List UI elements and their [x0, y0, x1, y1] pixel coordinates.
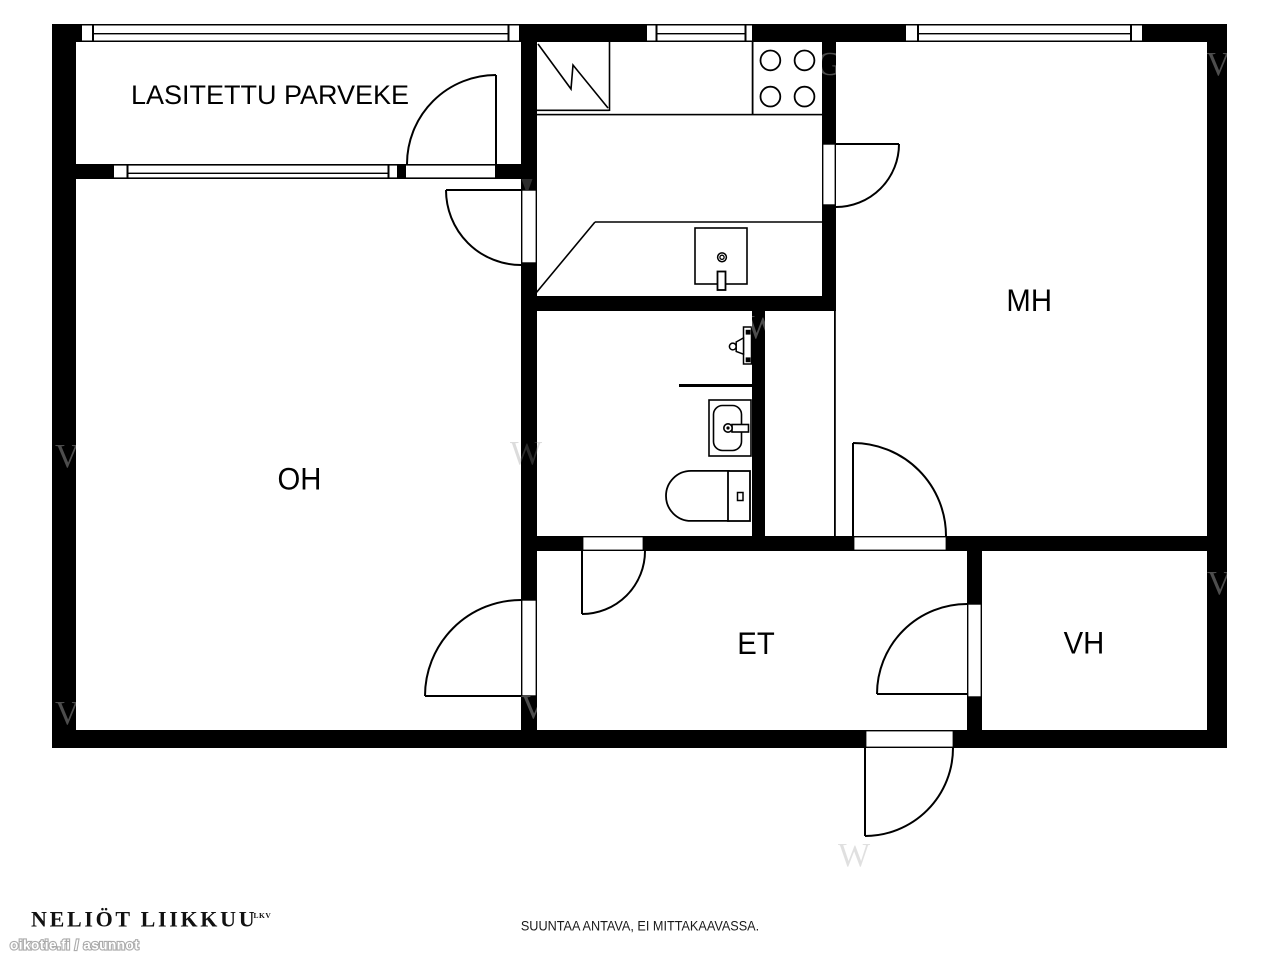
svg-text:V: V	[1206, 46, 1231, 83]
svg-text:MH: MH	[1006, 283, 1052, 318]
svg-text:LKV: LKV	[254, 911, 272, 920]
svg-text:NELIÖT LIIKKUU: NELIÖT LIIKKUU	[31, 907, 257, 932]
svg-text:oikotie.fi / asunnot: oikotie.fi / asunnot	[10, 938, 139, 953]
svg-text:V: V	[55, 695, 80, 732]
svg-text:G: G	[817, 46, 842, 83]
svg-text:OH: OH	[277, 461, 321, 496]
svg-text:V: V	[1207, 565, 1232, 602]
svg-text:W: W	[838, 837, 871, 874]
svg-text:ET: ET	[737, 626, 774, 661]
svg-text:W: W	[510, 435, 543, 472]
svg-text:V: V	[521, 689, 546, 726]
svg-text:SUUNTAA ANTAVA, EI MITTAKAAVAS: SUUNTAA ANTAVA, EI MITTAKAAVASSA.	[521, 918, 759, 934]
svg-text:VH: VH	[1064, 625, 1105, 660]
svg-text:V: V	[55, 438, 80, 475]
svg-text:W: W	[746, 309, 779, 346]
svg-text:LASITETTU PARVEKE: LASITETTU PARVEKE	[131, 80, 409, 110]
